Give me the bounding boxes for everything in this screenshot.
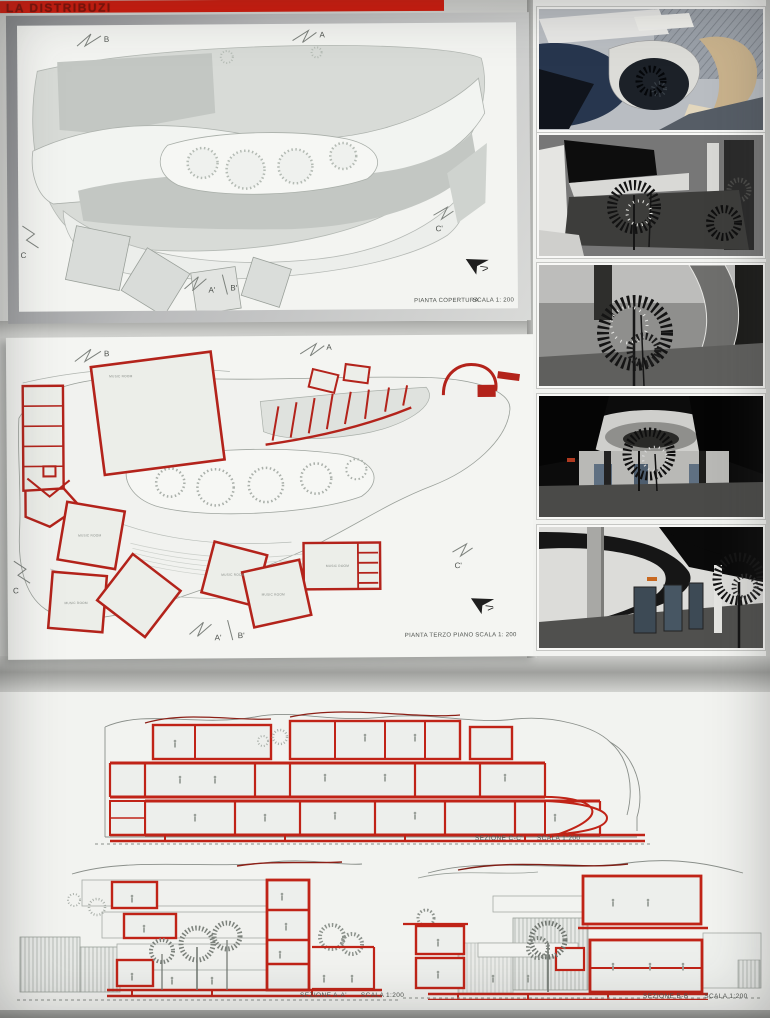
roof-plan-board: B A C C' A' B' PIANTA COPERTURA SCALA 1:…	[6, 12, 531, 324]
marker-b-prime: B'	[230, 283, 237, 292]
render-lobby-curve-interior-bw	[537, 525, 765, 650]
marker-c-prime: C'	[455, 561, 463, 570]
render-courtyard-trees-bw	[537, 133, 765, 258]
north-arrow-icon	[471, 592, 497, 615]
poster-title-banner: LA DISTRIBUZI	[0, 0, 444, 13]
roof-plan-caption-scale: SCALA 1: 200	[473, 298, 515, 304]
marker-b-prime: B'	[238, 631, 245, 640]
poster-title: LA DISTRIBUZI	[6, 1, 112, 14]
svg-text:MUSIC ROOM: MUSIC ROOM	[262, 593, 285, 597]
marker-c-prime: C'	[436, 224, 444, 233]
section-cc-caption: SEZIONE C-C'SCALA 1:200	[475, 835, 580, 842]
render-atrium-tree-interior-bw	[537, 394, 765, 519]
roof-plan-drawing: B A C C' A' B' PIANTA COPERTURA SCALA 1:…	[17, 22, 518, 311]
marker-c: C	[21, 251, 27, 260]
render-tree-ramp-closeup-bw	[537, 263, 765, 388]
renders-column	[533, 0, 766, 656]
floor-plan-caption-title: PIANTA TERZO PIANO	[405, 632, 474, 638]
sections-board: SEZIONE C-C'SCALA 1:200	[0, 692, 770, 1010]
marker-a: A	[326, 343, 332, 352]
marker-c: C	[13, 586, 19, 595]
floor-plan-board: MUSIC ROOM MUSIC ROOM MUSIC ROOM MUSIC R…	[6, 334, 536, 660]
marker-b: B	[104, 35, 109, 44]
floor-plan-drawing: MUSIC ROOM MUSIC ROOM MUSIC ROOM MUSIC R…	[6, 334, 536, 660]
north-arrow-icon	[466, 253, 492, 276]
section-bb-drawing	[398, 848, 768, 1000]
roof-plan-caption-title: PIANTA COPERTURA	[414, 298, 479, 304]
marker-a-prime: A'	[208, 286, 215, 295]
metal-strip-horizontal-2	[0, 656, 770, 692]
marker-a-prime: A'	[215, 633, 222, 642]
svg-text:MUSIC ROOM: MUSIC ROOM	[109, 374, 132, 378]
roof-plan-panel: B A C C' A' B' PIANTA COPERTURA SCALA 1:…	[17, 22, 518, 311]
svg-text:MUSIC ROOM: MUSIC ROOM	[78, 533, 101, 537]
poster-photo: LA DISTRIBUZI	[0, 0, 770, 1018]
render-aerial-color	[537, 7, 765, 132]
section-cc-structure	[110, 721, 645, 841]
section-aa-drawing	[12, 852, 405, 1002]
marker-a: A	[319, 30, 325, 39]
section-bb-caption: SEZIONE B-B'SCALA 1:200	[643, 993, 748, 1000]
section-cc-drawing	[85, 697, 665, 847]
svg-text:MUSIC ROOM: MUSIC ROOM	[64, 601, 87, 605]
svg-text:MUSIC ROOM: MUSIC ROOM	[326, 564, 349, 568]
section-aa-caption: SEZIONE A-A'SCALA 1:200	[300, 992, 404, 999]
svg-text:MUSIC ROOM: MUSIC ROOM	[221, 573, 244, 577]
marker-b: B	[104, 349, 109, 358]
floor-plan-caption-scale: SCALA 1: 200	[475, 632, 517, 638]
section-aa-context	[20, 861, 362, 992]
